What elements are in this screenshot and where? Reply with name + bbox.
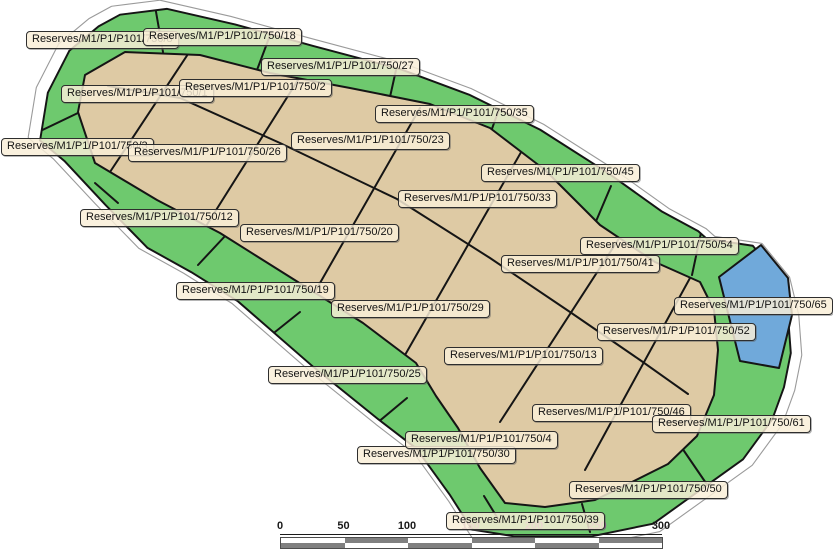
parcel-label[interactable]: Reserves/M1/P1/P101/750/65 [674, 297, 833, 315]
map-view: 050100150200250300 Reserves/M1/P1/P101/7… [0, 0, 833, 553]
parcel-label[interactable]: Reserves/M1/P1/P101/750/20 [240, 224, 399, 242]
parcel-label[interactable]: Reserves/M1/P1/P101/750/4 [405, 431, 558, 449]
parcel-label[interactable]: Reserves/M1/P1/P101/750/19 [176, 282, 335, 300]
parcel-label[interactable]: Reserves/M1/P1/P101/750/39 [446, 512, 605, 530]
label-layer: Reserves/M1/P1/P101/750/8Reserves/M1/P1/… [0, 0, 833, 553]
parcel-label[interactable]: Reserves/M1/P1/P101/750/26 [128, 144, 287, 162]
parcel-label[interactable]: Reserves/M1/P1/P101/750/41 [501, 255, 660, 273]
parcel-label[interactable]: Reserves/M1/P1/P101/750/2 [179, 79, 332, 97]
parcel-label[interactable]: Reserves/M1/P1/P101/750/27 [261, 58, 420, 76]
parcel-label[interactable]: Reserves/M1/P1/P101/750/35 [375, 105, 534, 123]
parcel-label[interactable]: Reserves/M1/P1/P101/750/33 [398, 190, 557, 208]
parcel-label[interactable]: Reserves/M1/P1/P101/750/25 [268, 366, 427, 384]
parcel-label[interactable]: Reserves/M1/P1/P101/750/29 [331, 300, 490, 318]
parcel-label[interactable]: Reserves/M1/P1/P101/750/18 [143, 28, 302, 46]
parcel-label[interactable]: Reserves/M1/P1/P101/750/23 [291, 132, 450, 150]
parcel-label[interactable]: Reserves/M1/P1/P101/750/61 [652, 415, 811, 433]
parcel-label[interactable]: Reserves/M1/P1/P101/750/12 [80, 209, 239, 227]
parcel-label[interactable]: Reserves/M1/P1/P101/750/50 [569, 481, 728, 499]
parcel-label[interactable]: Reserves/M1/P1/P101/750/54 [580, 237, 739, 255]
parcel-label[interactable]: Reserves/M1/P1/P101/750/52 [597, 323, 756, 341]
parcel-label[interactable]: Reserves/M1/P1/P101/750/13 [444, 347, 603, 365]
parcel-label[interactable]: Reserves/M1/P1/P101/750/45 [481, 164, 640, 182]
